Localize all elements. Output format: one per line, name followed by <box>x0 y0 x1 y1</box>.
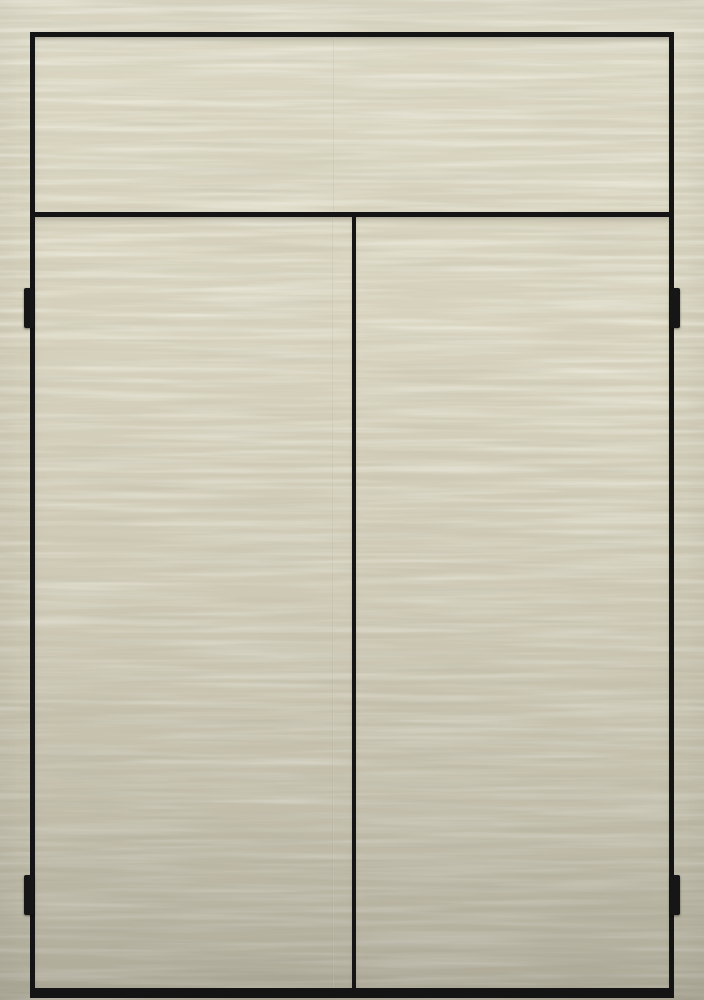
left-door <box>35 217 352 988</box>
hinge-bottom-right <box>670 875 680 915</box>
hinge-bottom-left <box>24 875 34 915</box>
cabinet-frame <box>30 32 674 998</box>
cabinet-photo <box>0 0 704 1000</box>
right-door <box>356 217 669 988</box>
top-panel <box>35 37 669 212</box>
center-stile <box>352 217 356 988</box>
hinge-top-left <box>24 288 34 328</box>
hinge-top-right <box>670 288 680 328</box>
